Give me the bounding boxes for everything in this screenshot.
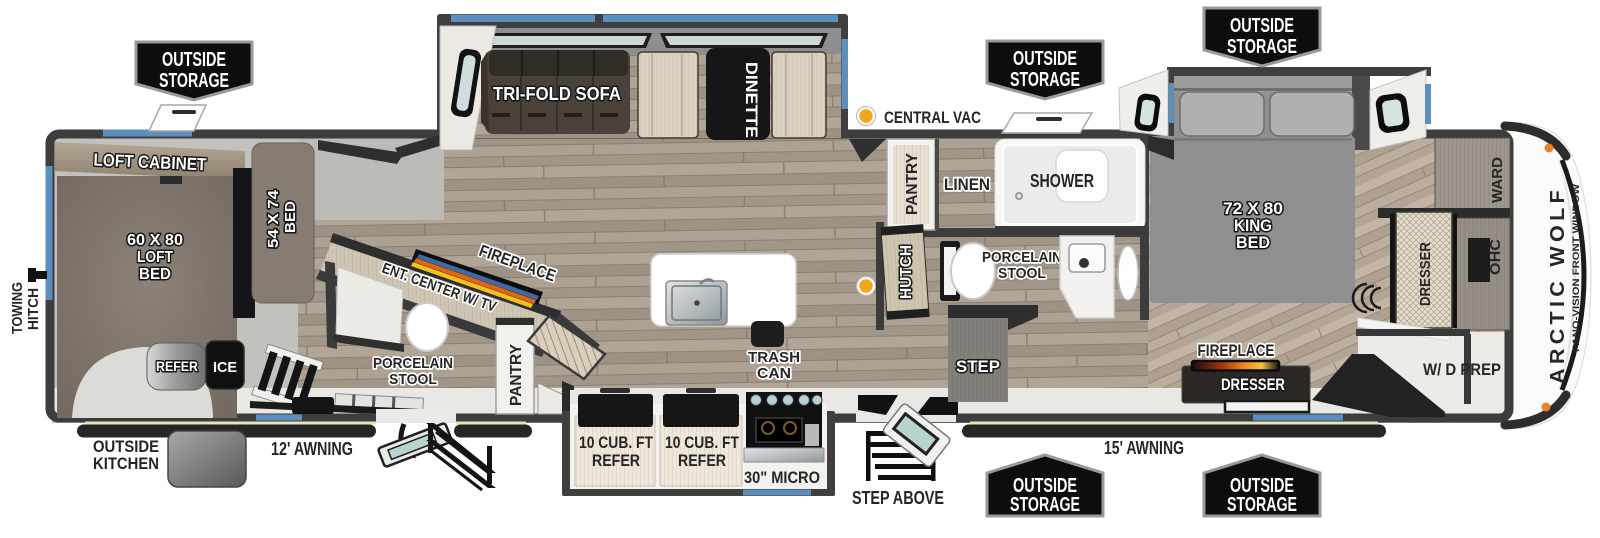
svg-text:DRESSER: DRESSER (1221, 376, 1285, 394)
svg-text:TRI-FOLD SOFA: TRI-FOLD SOFA (493, 84, 621, 104)
svg-text:ARCTIC WOLF: ARCTIC WOLF (1547, 186, 1569, 384)
svg-text:STEP: STEP (956, 357, 1000, 376)
svg-text:OUTSIDE: OUTSIDE (1230, 15, 1294, 37)
svg-text:STORAGE: STORAGE (1010, 69, 1080, 91)
svg-text:PANO-VISION FRONT WINDOW: PANO-VISION FRONT WINDOW (1571, 184, 1582, 352)
svg-text:REFER: REFER (156, 358, 198, 374)
svg-text:CAN: CAN (757, 365, 791, 382)
svg-text:OUTSIDE: OUTSIDE (162, 49, 226, 71)
svg-text:KING: KING (1234, 217, 1272, 235)
svg-text:10 CUB. FT: 10 CUB. FT (579, 434, 653, 452)
svg-text:OHC: OHC (1488, 238, 1504, 275)
svg-text:BED: BED (1236, 234, 1270, 252)
svg-text:PORCELAIN: PORCELAIN (982, 249, 1062, 266)
svg-text:OUTSIDE: OUTSIDE (1013, 48, 1077, 70)
svg-text:STORAGE: STORAGE (1227, 494, 1297, 516)
svg-text:ICE: ICE (213, 360, 237, 376)
svg-text:REFER: REFER (592, 452, 640, 470)
svg-text:DINETTE: DINETTE (742, 62, 760, 138)
svg-text:DRESSER: DRESSER (1418, 242, 1434, 306)
svg-text:STEP ABOVE: STEP ABOVE (852, 487, 944, 508)
svg-text:60 X 80: 60 X 80 (127, 232, 183, 249)
svg-text:FIREPLACE: FIREPLACE (1198, 342, 1275, 360)
svg-text:PORCELAIN: PORCELAIN (373, 355, 453, 372)
svg-text:HITCH: HITCH (26, 288, 42, 330)
svg-text:WARD: WARD (1490, 157, 1506, 203)
svg-text:STORAGE: STORAGE (1227, 36, 1297, 58)
svg-text:10 CUB. FT: 10 CUB. FT (665, 434, 739, 452)
svg-text:STOOL: STOOL (998, 265, 1046, 282)
svg-text:REFER: REFER (678, 452, 726, 470)
svg-text:LINEN: LINEN (944, 176, 990, 194)
svg-text:BED: BED (139, 266, 171, 283)
svg-text:STORAGE: STORAGE (1010, 494, 1080, 516)
svg-text:12' AWNING: 12' AWNING (271, 439, 353, 459)
svg-text:STORAGE: STORAGE (159, 70, 229, 92)
svg-text:TOWING: TOWING (10, 282, 26, 334)
svg-text:W/ D PREP: W/ D PREP (1423, 361, 1501, 379)
svg-text:LOFT: LOFT (137, 249, 173, 266)
svg-text:SHOWER: SHOWER (1030, 171, 1094, 191)
svg-text:HUTCH: HUTCH (898, 245, 915, 299)
svg-text:15' AWNING: 15' AWNING (1104, 438, 1184, 458)
svg-text:CENTRAL VAC: CENTRAL VAC (884, 109, 981, 127)
svg-text:KITCHEN: KITCHEN (93, 455, 159, 473)
svg-text:BED: BED (282, 201, 299, 233)
svg-text:PANTRY: PANTRY (508, 343, 525, 406)
svg-text:30" MICRO: 30" MICRO (744, 469, 820, 487)
svg-text:STOOL: STOOL (389, 371, 437, 388)
svg-text:OUTSIDE: OUTSIDE (93, 438, 159, 456)
svg-text:72 X 80: 72 X 80 (1223, 200, 1283, 218)
svg-text:PANTRY: PANTRY (904, 152, 921, 215)
svg-text:54 X 74: 54 X 74 (265, 189, 282, 248)
svg-text:TRASH: TRASH (748, 349, 800, 366)
